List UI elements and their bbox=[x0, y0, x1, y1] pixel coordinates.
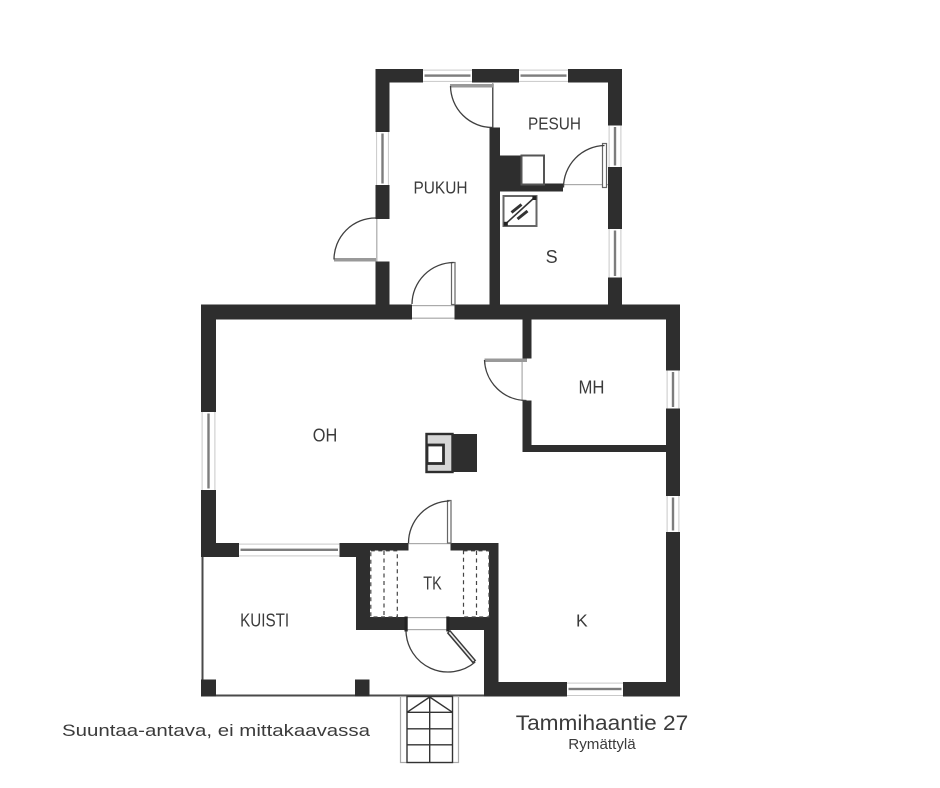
svg-text:PUKUH: PUKUH bbox=[414, 178, 468, 198]
svg-text:Suuntaa-antava, ei mittakaavas: Suuntaa-antava, ei mittakaavassa bbox=[62, 721, 371, 740]
svg-text:Tammihaantie 27: Tammihaantie 27 bbox=[516, 711, 689, 735]
svg-text:S: S bbox=[546, 247, 558, 267]
svg-text:KUISTI: KUISTI bbox=[240, 611, 289, 631]
svg-text:PESUH: PESUH bbox=[528, 114, 581, 134]
svg-text:TK: TK bbox=[423, 574, 442, 594]
svg-text:OH: OH bbox=[313, 426, 338, 446]
svg-text:K: K bbox=[576, 611, 588, 631]
svg-text:Rymättylä: Rymättylä bbox=[568, 737, 636, 753]
svg-text:MH: MH bbox=[579, 378, 605, 398]
